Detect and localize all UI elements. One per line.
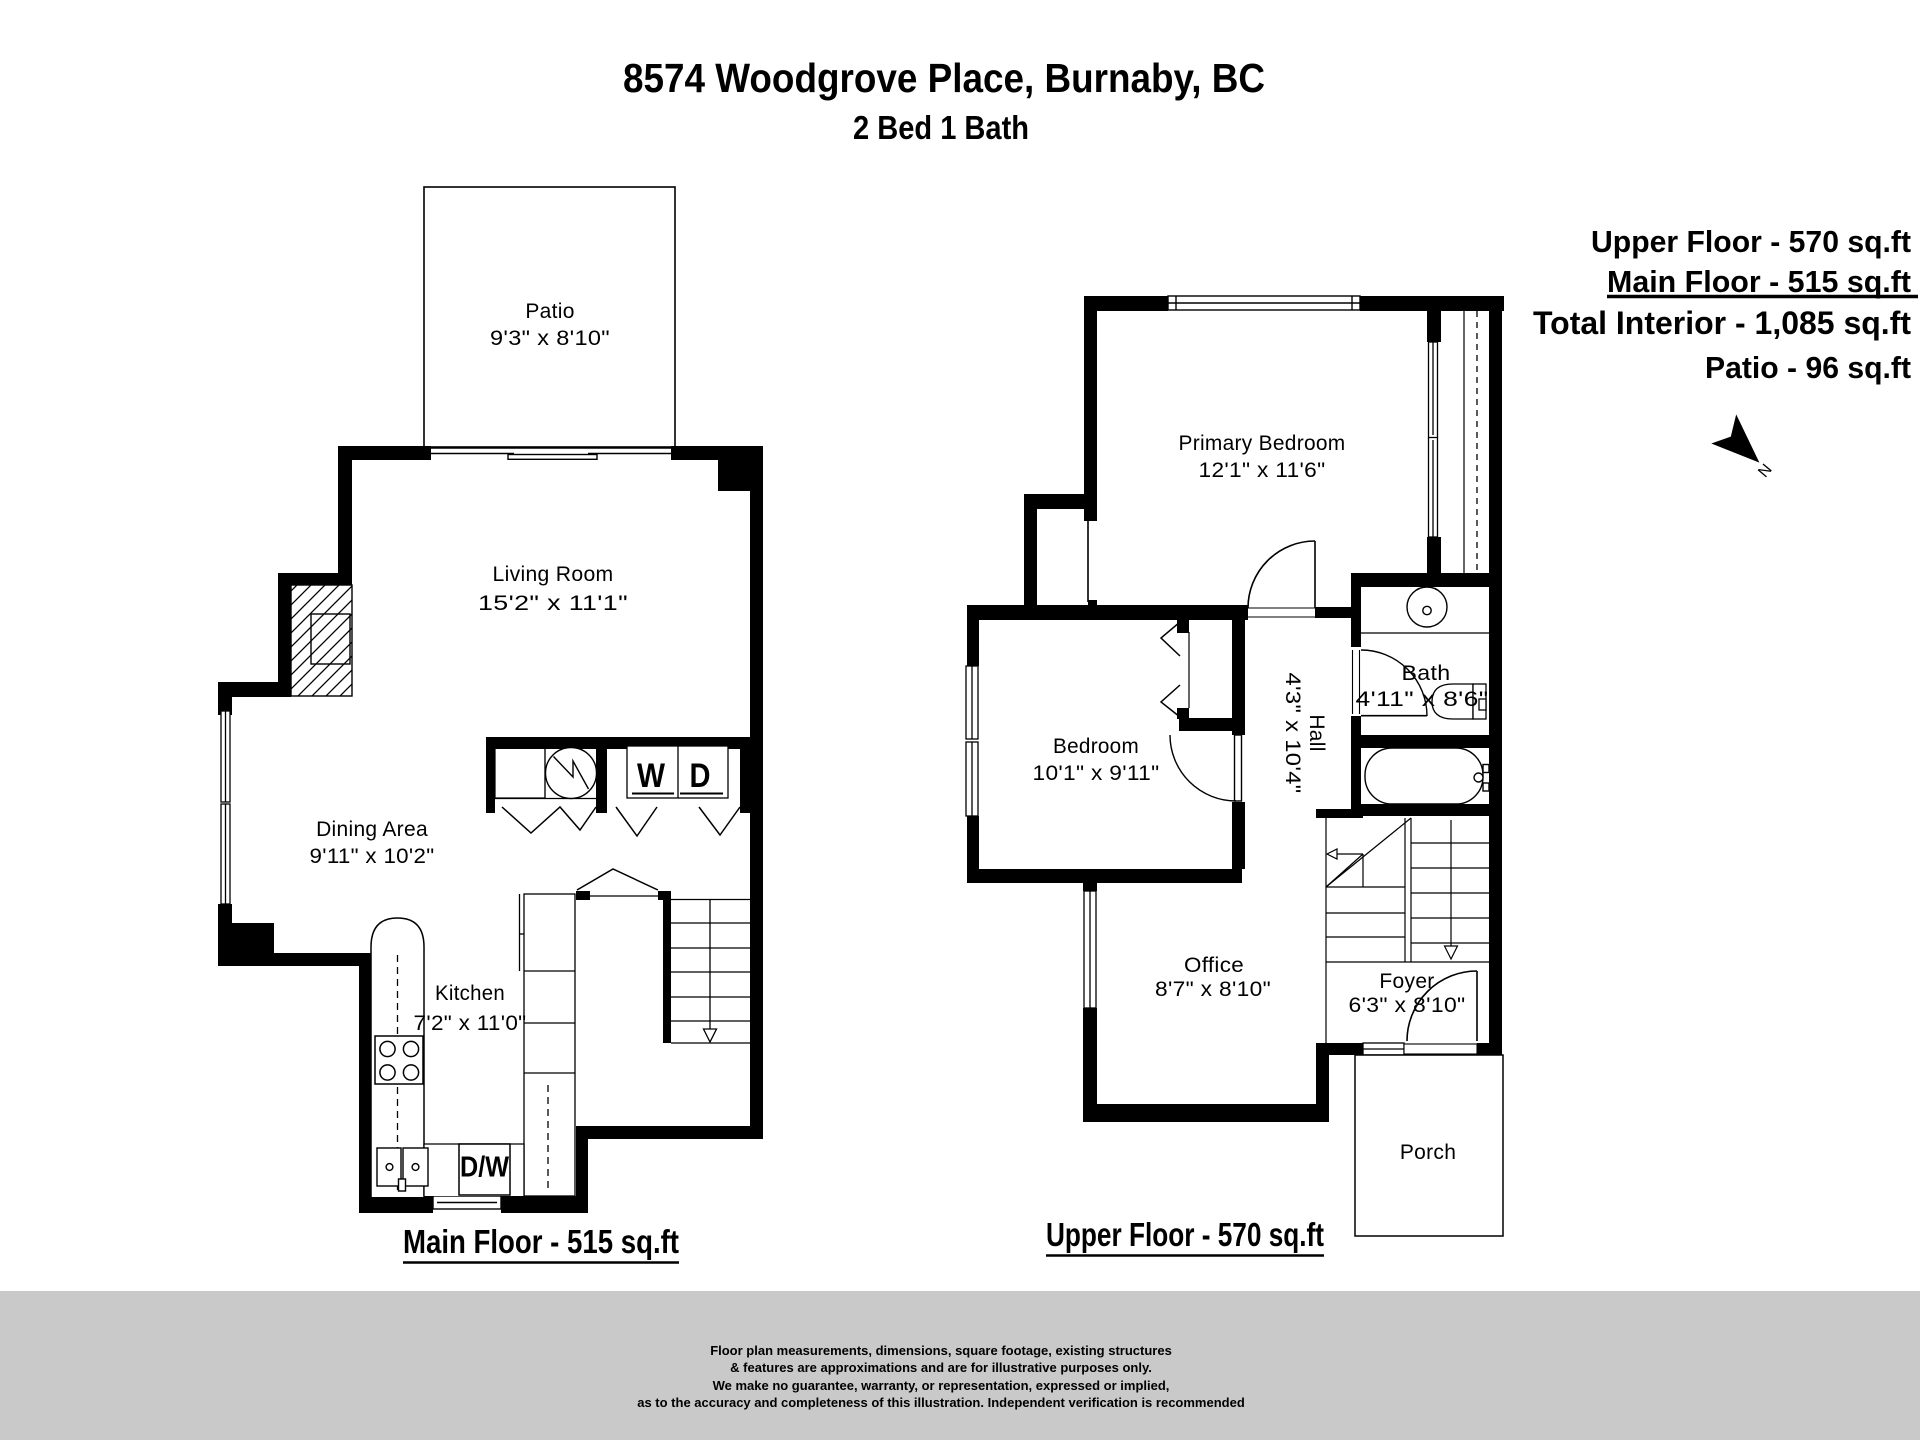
svg-text:Office: Office	[1184, 954, 1244, 977]
svg-text:Total Interior - 1,085 sq.ft: Total Interior - 1,085 sq.ft	[1533, 305, 1911, 341]
svg-text:Bedroom: Bedroom	[1053, 735, 1139, 758]
svg-text:Hall: Hall	[1305, 714, 1328, 751]
svg-text:as to the accuracy and complet: as to the accuracy and completeness of t…	[637, 1395, 1245, 1410]
svg-text:Living Room: Living Room	[493, 563, 614, 586]
svg-text:15'2" x 11'1": 15'2" x 11'1"	[478, 592, 628, 615]
svg-text:Dining Area: Dining Area	[316, 818, 428, 841]
svg-text:10'1" x 9'11": 10'1" x 9'11"	[1033, 762, 1160, 785]
svg-text:D/W: D/W	[460, 1152, 510, 1184]
svg-text:Main Floor - 515 sq.ft: Main Floor - 515 sq.ft	[1607, 264, 1911, 299]
svg-text:Kitchen: Kitchen	[435, 982, 505, 1005]
svg-text:Bath: Bath	[1402, 662, 1451, 685]
svg-text:Main Floor - 515 sq.ft: Main Floor - 515 sq.ft	[403, 1223, 679, 1260]
svg-text:8'7" x 8'10": 8'7" x 8'10"	[1155, 978, 1271, 1001]
svg-text:D: D	[690, 757, 711, 795]
svg-text:2 Bed 1 Bath: 2 Bed 1 Bath	[853, 109, 1029, 146]
svg-text:Floor plan measurements, dimen: Floor plan measurements, dimensions, squ…	[710, 1343, 1172, 1358]
svg-text:Patio - 96 sq.ft: Patio - 96 sq.ft	[1705, 350, 1911, 385]
svg-text:We make no guarantee, warranty: We make no guarantee, warranty, or repre…	[713, 1378, 1170, 1393]
svg-text:Primary Bedroom: Primary Bedroom	[1179, 432, 1346, 455]
svg-text:Porch: Porch	[1400, 1141, 1456, 1164]
svg-text:4'11" x 8'6": 4'11" x 8'6"	[1356, 688, 1489, 711]
svg-text:9'3" x 8'10": 9'3" x 8'10"	[490, 327, 610, 350]
svg-text:W: W	[637, 757, 666, 795]
svg-text:7'2" x 11'0": 7'2" x 11'0"	[414, 1012, 527, 1035]
svg-text:Patio: Patio	[525, 300, 574, 323]
svg-text:12'1" x 11'6": 12'1" x 11'6"	[1199, 459, 1326, 482]
svg-text:Upper Floor - 570 sq.ft: Upper Floor - 570 sq.ft	[1591, 224, 1911, 259]
svg-text:Upper Floor - 570 sq.ft: Upper Floor - 570 sq.ft	[1046, 1216, 1324, 1253]
svg-text:4'3" x 10'4": 4'3" x 10'4"	[1281, 673, 1304, 794]
svg-text:9'11" x 10'2": 9'11" x 10'2"	[310, 845, 435, 868]
svg-text:& features are approximations: & features are approximations and are fo…	[730, 1360, 1152, 1375]
svg-text:8574 Woodgrove Place, Burnaby,: 8574 Woodgrove Place, Burnaby, BC	[623, 55, 1265, 101]
svg-text:Foyer: Foyer	[1379, 970, 1434, 993]
svg-text:6'3" x 8'10": 6'3" x 8'10"	[1349, 994, 1466, 1017]
